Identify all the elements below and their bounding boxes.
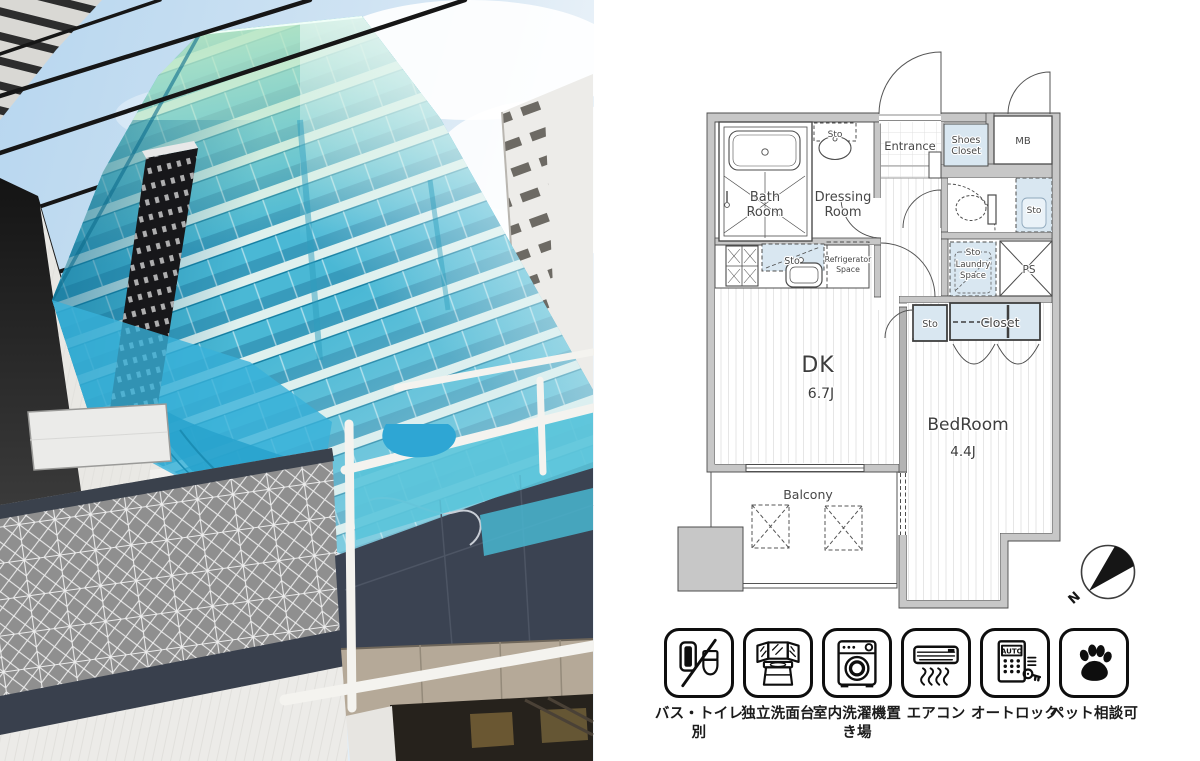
entrance-label: Entrance [884,139,936,153]
sto-bedroom-label: Sto [922,319,938,330]
amenity-pet-consult: ペット相談可 [1059,628,1129,743]
toilet-room [948,178,1052,232]
shoes-closet-label: Shoes [952,135,981,146]
entrance-door-arc [879,52,941,114]
amenity-bath-toilet-separate: バス・トイレ 別 [664,628,734,743]
balcony-label: Balcony [783,487,833,502]
sto-toilet-label: Sto [1027,206,1042,216]
closet-label: Closet [981,315,1020,330]
amenity-label-line: き場 [799,724,915,743]
independent-washbasin-icon [752,637,804,689]
amenity-indoor-washer: 室内洗濯機置 き場 [822,628,892,743]
building-photo [0,0,594,761]
building-photo-svg [0,0,594,761]
north-label: N [1066,589,1084,607]
entrance-cabinet [929,152,941,178]
laundry-label: Sto [966,248,981,258]
laundry-label-3: Space [960,271,986,281]
indoor-washer-icon [831,637,883,689]
dk-label: DK [801,353,834,378]
amenity-auto-lock: AUTO オートロック [980,628,1050,743]
auto-lock-icon: AUTO [989,637,1041,689]
amenity-label-line: ペット相談可 [1036,705,1152,724]
bath-room [719,122,812,241]
listing-image: N Bath Room Dressing Room Entrance Shoes… [0,0,1200,761]
auto-badge: AUTO [1001,646,1023,655]
bath-label-2: Room [746,205,783,220]
amenity-air-conditioner: エアコン [901,628,971,743]
washbasin [814,123,881,238]
bedroom-window [898,473,908,535]
shoes-closet-label-2: Closet [951,146,981,157]
ps-label: PS [1023,264,1036,276]
compass: N [1066,546,1135,608]
refrigerator-label: Refrigerator [825,255,873,264]
amenity-row: バス・トイレ 別 独立洗面台 [664,628,1129,743]
bedroom-size-label: 4.4J [950,444,975,460]
laundry-label-2: Laundry [956,260,991,270]
mb-label: MB [1015,136,1031,147]
amenity-label-line: 別 [641,724,757,743]
pet-consult-icon [1068,637,1120,689]
dk-size-label: 6.7J [808,386,834,402]
bath-label: Bath [750,190,780,205]
signage-slab [28,404,171,470]
sto-kitchen-label: Sto [784,256,800,267]
dressing-label-2: Room [824,205,861,220]
refrigerator-label-2: Space [836,265,860,274]
sto-dressing-label: Sto [828,130,843,140]
dressing-label: Dressing [815,190,872,205]
mb-door-arc [1008,72,1050,114]
floor-plan-svg: N Bath Room Dressing Room Entrance Shoes… [650,0,1200,620]
bedroom-label: BedRoom [927,415,1008,435]
air-conditioner-icon [910,637,962,689]
bath-toilet-separate-icon [673,637,725,689]
floor-plan: N Bath Room Dressing Room Entrance Shoes… [650,0,1200,620]
